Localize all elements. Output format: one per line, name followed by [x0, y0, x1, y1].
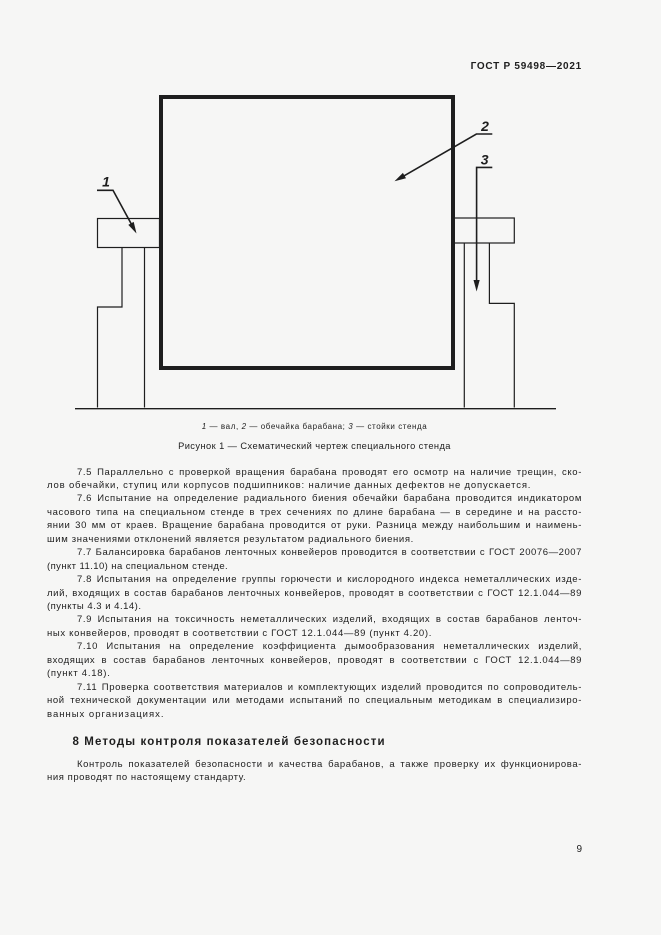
svg-text:3: 3	[481, 152, 489, 168]
svg-text:2: 2	[480, 118, 489, 134]
svg-text:1: 1	[102, 174, 110, 190]
